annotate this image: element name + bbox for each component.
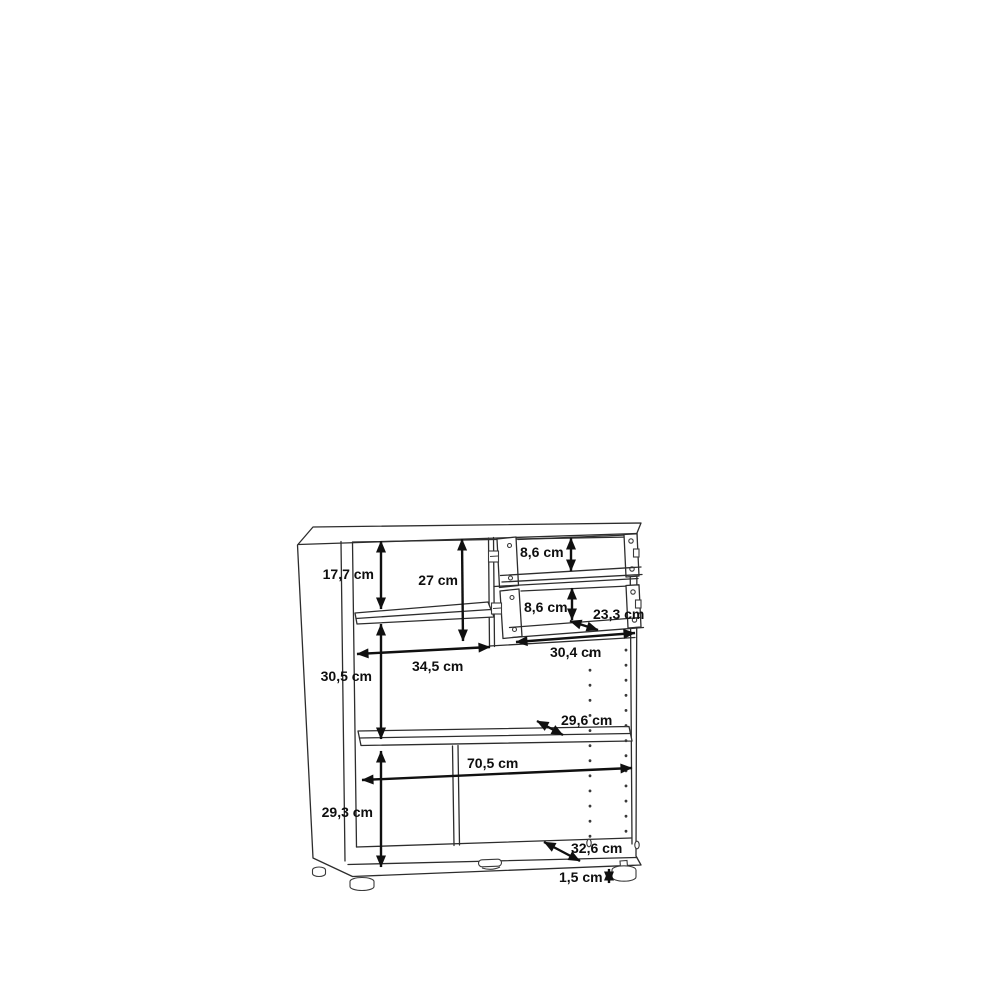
drawer-bottom-back-screw-1 [631,590,635,594]
dim-label-interior-width: 70,5 cm [467,755,518,771]
dim-label-bottom-shelf-depth: 32,6 cm [571,840,622,856]
dim-label-upper-left-compartment-height: 17,7 cm [323,566,374,582]
foot-front-left [350,878,374,891]
dim-label-shelf-depth: 29,6 cm [561,712,612,728]
dim-label-top-drawer-height: 8,6 cm [520,544,564,560]
drawer-top-cam-slot [490,556,498,557]
drawer-bottom-cam-slot [493,608,501,609]
dim-label-drawer-depth: 23,3 cm [593,606,644,622]
door-handle-cutout [478,859,501,867]
drawer-top-front-screw-2 [509,576,513,580]
drawer-bottom-front-screw-1 [510,596,514,600]
drawer-bottom-front-screw-2 [513,628,517,632]
drawer-top-front-screw-1 [508,544,512,548]
dim-label-left-compartment-width: 34,5 cm [412,658,463,674]
foot-back-left [313,867,326,877]
diagram-page: 17,7 cm 27 cm 8,6 cm 8,6 cm 23,3 cm 30,4… [0,0,984,984]
dim-arrow-drawer-column-height [462,539,463,641]
dim-label-lower-drawer-height: 8,6 cm [524,599,568,615]
dim-label-bottom-compartment-height: 29,3 cm [322,804,373,820]
dim-label-drawer-width: 30,4 cm [550,644,601,660]
drawer-top-back-screw-1 [629,539,633,543]
door-guide-fitting-right [635,841,639,849]
dim-label-foot-height: 1,5 cm [559,869,603,885]
dim-label-drawer-column-height: 27 cm [418,572,458,588]
drawer-top-runner-bracket [634,549,640,557]
furniture-dimension-diagram: 17,7 cm 27 cm 8,6 cm 8,6 cm 23,3 cm 30,4… [0,0,984,984]
dim-label-middle-left-height: 30,5 cm [321,668,372,684]
